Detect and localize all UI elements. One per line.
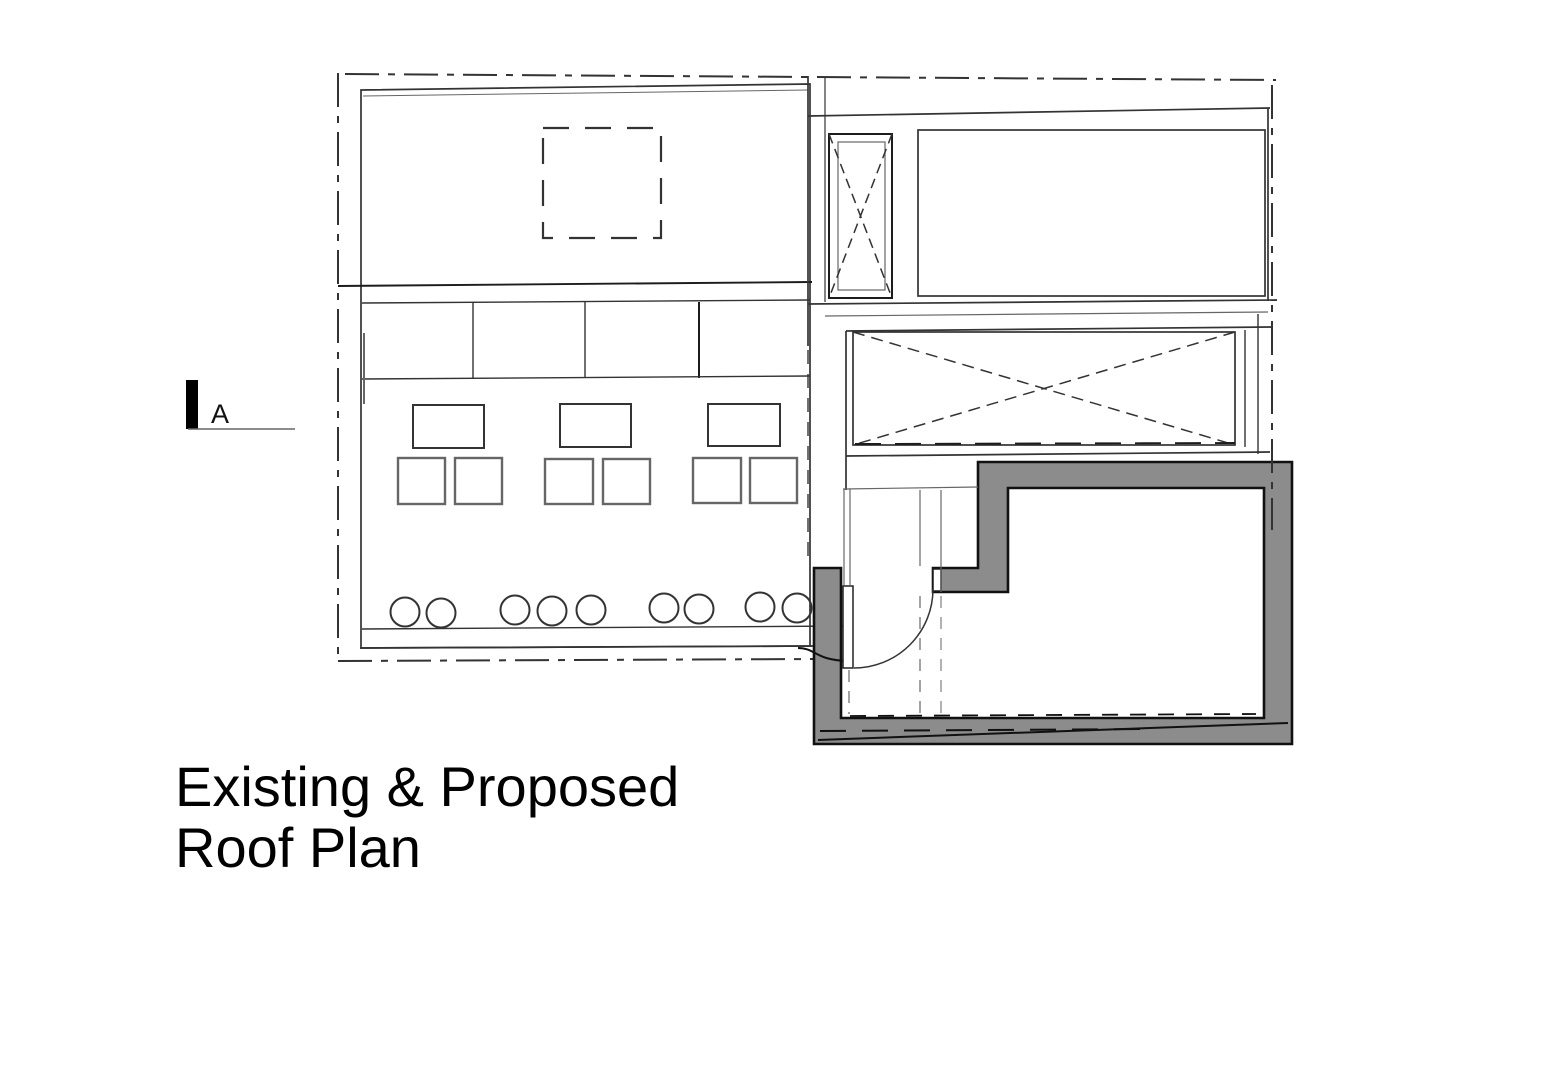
band-line-3	[846, 327, 1272, 331]
proposed-extension	[814, 462, 1292, 744]
vent-circle-3	[501, 596, 530, 625]
proposed-extension-walls	[814, 462, 1292, 744]
section-marker-label: A	[211, 399, 229, 429]
vent-circle-9	[783, 594, 812, 623]
band-line-4	[846, 452, 1270, 456]
roof-square-2	[455, 458, 502, 504]
vent-circle-2	[427, 599, 456, 628]
eaves-line-lower	[360, 646, 816, 648]
roof-square-6	[750, 458, 797, 503]
rooflight-rects	[413, 404, 780, 448]
vent-circle-1	[391, 598, 420, 627]
chimney-dashed-outline	[543, 128, 661, 238]
vent-circle-6	[650, 594, 679, 623]
extension-interior-details	[798, 85, 1288, 740]
drawing-title-line1: Existing & Proposed	[175, 756, 679, 817]
door-swing-arc	[854, 589, 933, 668]
rooflight-x-large-bottom-dashed	[855, 443, 1235, 444]
right-block-top	[808, 108, 1270, 116]
vent-circle-8	[746, 593, 775, 622]
rooflight-x-large	[853, 314, 1258, 454]
vent-circle-5	[577, 596, 606, 625]
section-marker: A	[186, 380, 295, 429]
left-roof-outline-echo	[363, 90, 808, 96]
rooflight-x-small-inner	[838, 142, 885, 290]
door-jamb	[933, 569, 941, 591]
panel-row-bottom	[362, 376, 810, 379]
ridge-line-lower	[362, 300, 810, 303]
roof-square-4	[603, 459, 650, 504]
door-leaf	[843, 586, 853, 668]
band-line-1	[808, 300, 1277, 304]
site-boundary-dashdot	[338, 73, 1276, 662]
bottom-band-inner-dashed	[850, 714, 1256, 716]
boundary-top	[345, 74, 1276, 80]
rooflight-rect-2	[560, 404, 631, 447]
right-roof-panel	[918, 130, 1265, 296]
roof-square-1	[398, 458, 445, 504]
rooflight-x-small	[829, 134, 892, 298]
drawing-title: Existing & Proposed Roof Plan	[175, 756, 679, 878]
roof-square-3	[545, 459, 593, 504]
roof-squares	[398, 458, 797, 504]
band-line-2	[825, 312, 1268, 316]
rooflight-rect-3	[708, 404, 780, 446]
drawing-sheet: A Existing & Proposed Roof Plan	[0, 0, 1552, 1080]
drawing-title-line2: Roof Plan	[175, 817, 679, 878]
rooflight-rect-1	[413, 405, 484, 448]
roof-square-5	[693, 458, 741, 503]
existing-line-horizontal	[843, 487, 978, 489]
roof-plan-drawing: A	[0, 0, 1552, 1080]
roof-vent-circles	[391, 593, 812, 628]
vent-circle-7	[685, 595, 714, 624]
section-marker-bar	[186, 380, 198, 429]
left-roof-block	[338, 84, 846, 648]
vent-circle-4	[538, 597, 567, 626]
ridge-line-upper	[338, 282, 812, 286]
boundary-bottom-left	[338, 659, 816, 661]
